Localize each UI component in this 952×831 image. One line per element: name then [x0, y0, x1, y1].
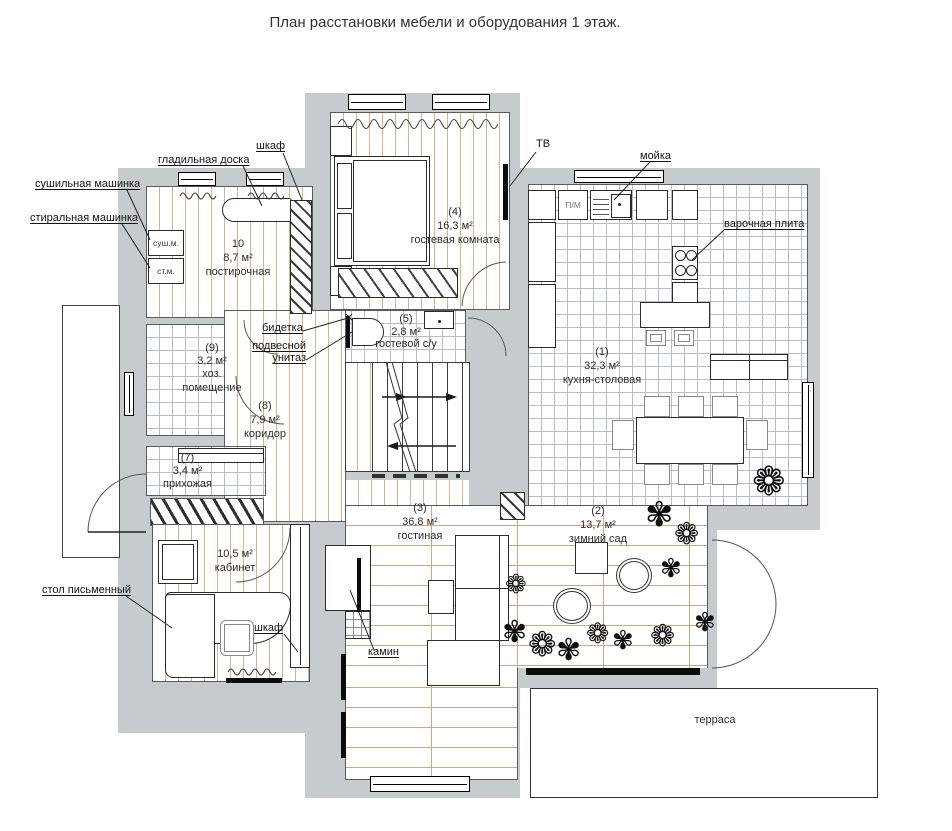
counter — [672, 190, 698, 220]
entry-porch — [62, 305, 120, 558]
room-label-hall: (7) 3,4 м² прихожая — [130, 452, 245, 492]
annotation-sink: мойка — [640, 150, 671, 162]
annotation-dryer: сушильная машинка — [35, 178, 140, 190]
counter — [528, 222, 556, 282]
room-number: (7) — [130, 452, 245, 465]
office-desk-return — [165, 594, 215, 678]
window-bar — [341, 712, 346, 758]
dining-table — [636, 417, 744, 464]
fireplace-glass — [357, 558, 361, 612]
room-name: хоз. помещение — [172, 368, 252, 394]
room-name: зимний сад — [538, 533, 658, 547]
room-name: коридор — [205, 428, 325, 442]
dining-chair — [678, 396, 704, 417]
window — [432, 94, 490, 110]
annotation-bidet: бидетка — [262, 322, 303, 334]
window — [802, 382, 814, 478]
room-label-terrace: терраса — [655, 714, 775, 728]
burner — [675, 265, 686, 276]
window-bar — [341, 654, 346, 700]
sink-faucet-dot — [618, 203, 621, 206]
plant-icon: ❁ — [650, 622, 675, 652]
plant-icon: ❁ — [674, 520, 699, 550]
floor-plan: План расстановки мебели и оборудования 1… — [0, 0, 952, 831]
terrace-area — [530, 688, 878, 798]
room-area: 8,7 м² — [178, 252, 298, 266]
room-label-guest: (4) 16,3 м² гостевая комната — [395, 206, 515, 247]
dining-chair — [678, 464, 704, 485]
room-name: гостиная — [360, 530, 480, 544]
sofa-divider — [456, 588, 508, 589]
dining-chair — [712, 396, 738, 417]
burner — [686, 265, 697, 276]
room-area: 32,3 м² — [542, 360, 662, 374]
office-window-bar — [226, 678, 282, 683]
plant-icon: ❁ — [505, 572, 527, 598]
room-name: кабинет — [175, 562, 295, 576]
room-label-kitchen: (1) 32,3 м² кухня-столовая — [542, 346, 662, 387]
annotation-wall-toilet: подвесной унитаз — [230, 340, 306, 364]
kitchen-island — [640, 302, 710, 328]
window — [348, 94, 406, 110]
room-name: прихожая — [130, 478, 245, 491]
counter — [528, 284, 556, 348]
kitchen-sofa — [710, 354, 788, 380]
counter — [528, 190, 556, 220]
window — [178, 172, 216, 186]
plant-icon: ❁ — [586, 620, 609, 648]
stairs-dashed-edge — [372, 474, 460, 478]
bed-pillow — [337, 163, 352, 209]
room-label-corridor: (8) 7,9 м² коридор — [205, 400, 325, 441]
counter — [636, 190, 668, 220]
wardrobe-line — [300, 527, 301, 665]
dishwasher-box: П/М — [558, 190, 588, 220]
room-area: 10,5 м² — [175, 548, 295, 562]
garden-glass-door — [526, 668, 700, 675]
room-label-laundry: 10 8,7 м² постирочная — [178, 238, 298, 279]
kitchen-sink-unit — [590, 190, 632, 220]
room-area: 16,3 м² — [395, 220, 515, 234]
sofa-back — [711, 355, 787, 361]
column-pier — [500, 492, 525, 520]
fireplace-body — [325, 545, 371, 611]
dryer-tag: суш.м. — [153, 238, 179, 248]
room-area: 3,4 м² — [130, 465, 245, 478]
dining-chair — [712, 464, 738, 485]
sofa-back — [499, 536, 500, 640]
room-number: 10 — [178, 238, 298, 252]
office-chair — [220, 620, 254, 656]
stairs-outline — [345, 362, 470, 472]
plant-icon: ✾ — [660, 556, 682, 582]
cooktop — [672, 246, 698, 280]
room-area: 36,8 м² — [360, 516, 480, 530]
bar-stool — [646, 330, 666, 346]
room-area: 2,8 м² — [348, 326, 464, 339]
room-number: (8) — [205, 400, 325, 414]
room-number: (3) — [360, 502, 480, 516]
living-armchair — [427, 640, 500, 686]
room-number: (1) — [542, 346, 662, 360]
garden-stool — [575, 542, 608, 574]
fireplace-hearth — [345, 611, 371, 639]
bedside-table — [330, 126, 352, 156]
room-label-living: (3) 36,8 м² гостиная — [360, 502, 480, 543]
annotation-cooktop: варочная плита — [724, 218, 804, 230]
window — [124, 372, 134, 416]
room-area: 13,7 м² — [538, 519, 658, 533]
annotation-wardrobe-top: шкаф — [256, 140, 285, 152]
room-label-winter-garden: (2) 13,7 м² зимний сад — [538, 505, 658, 546]
room-name: гостевая комната — [395, 234, 515, 248]
room-area: 7,9 м² — [205, 414, 325, 428]
room-name: гостевой с/у — [348, 338, 464, 351]
plant-icon: ✾ — [502, 618, 527, 648]
plant-icon: ❁ — [752, 462, 786, 502]
plant-icon: ✾ — [556, 636, 581, 666]
room-number: (4) — [395, 206, 515, 220]
plant-icon: ✾ — [694, 610, 716, 636]
washer-tag: ст.м. — [157, 266, 175, 276]
entry-mat — [150, 498, 264, 526]
office-wardrobe — [290, 524, 310, 668]
bed-pillow — [337, 213, 352, 259]
dining-chair — [612, 420, 634, 450]
door-arc — [712, 540, 776, 604]
plan-title: План расстановки мебели и оборудования 1… — [0, 14, 890, 31]
room-label-office: 10,5 м² кабинет — [175, 548, 295, 576]
room-label-guest-wc: (5) 2,8 м² гостевой с/у — [348, 313, 464, 351]
guest-wardrobe — [338, 268, 458, 298]
room-name: кухня-столовая — [542, 374, 662, 388]
side-table — [428, 580, 454, 614]
window — [574, 170, 664, 183]
dishwasher-tag: П/М — [565, 200, 581, 210]
room-name: постирочная — [178, 266, 298, 280]
annotation-tv: ТВ — [536, 138, 550, 150]
annotation-fireplace: камин — [368, 646, 399, 658]
living-sofa — [455, 535, 509, 641]
plant-icon: ❁ — [528, 628, 557, 662]
window — [370, 776, 470, 792]
burner — [686, 250, 697, 261]
dining-chair — [644, 396, 670, 417]
dining-chair — [644, 464, 670, 485]
annotation-washer: стиральная машинка — [30, 212, 138, 224]
room-number: (5) — [348, 313, 464, 326]
door-arc — [712, 604, 776, 668]
annotation-wardrobe-office: шкаф — [254, 622, 283, 634]
window — [246, 172, 284, 186]
sink-basin — [611, 194, 631, 218]
room-name: терраса — [655, 714, 775, 728]
ironing-board — [222, 198, 292, 222]
plant-icon: ✾ — [612, 628, 634, 654]
burner — [675, 250, 686, 261]
annotation-desk: стол письменный — [42, 584, 131, 596]
bar-stool — [674, 330, 694, 346]
room-number: (2) — [538, 505, 658, 519]
dining-chair — [746, 420, 768, 450]
annotation-ironing-board: гладильная доска — [158, 154, 249, 166]
garden-round-table — [616, 558, 652, 593]
